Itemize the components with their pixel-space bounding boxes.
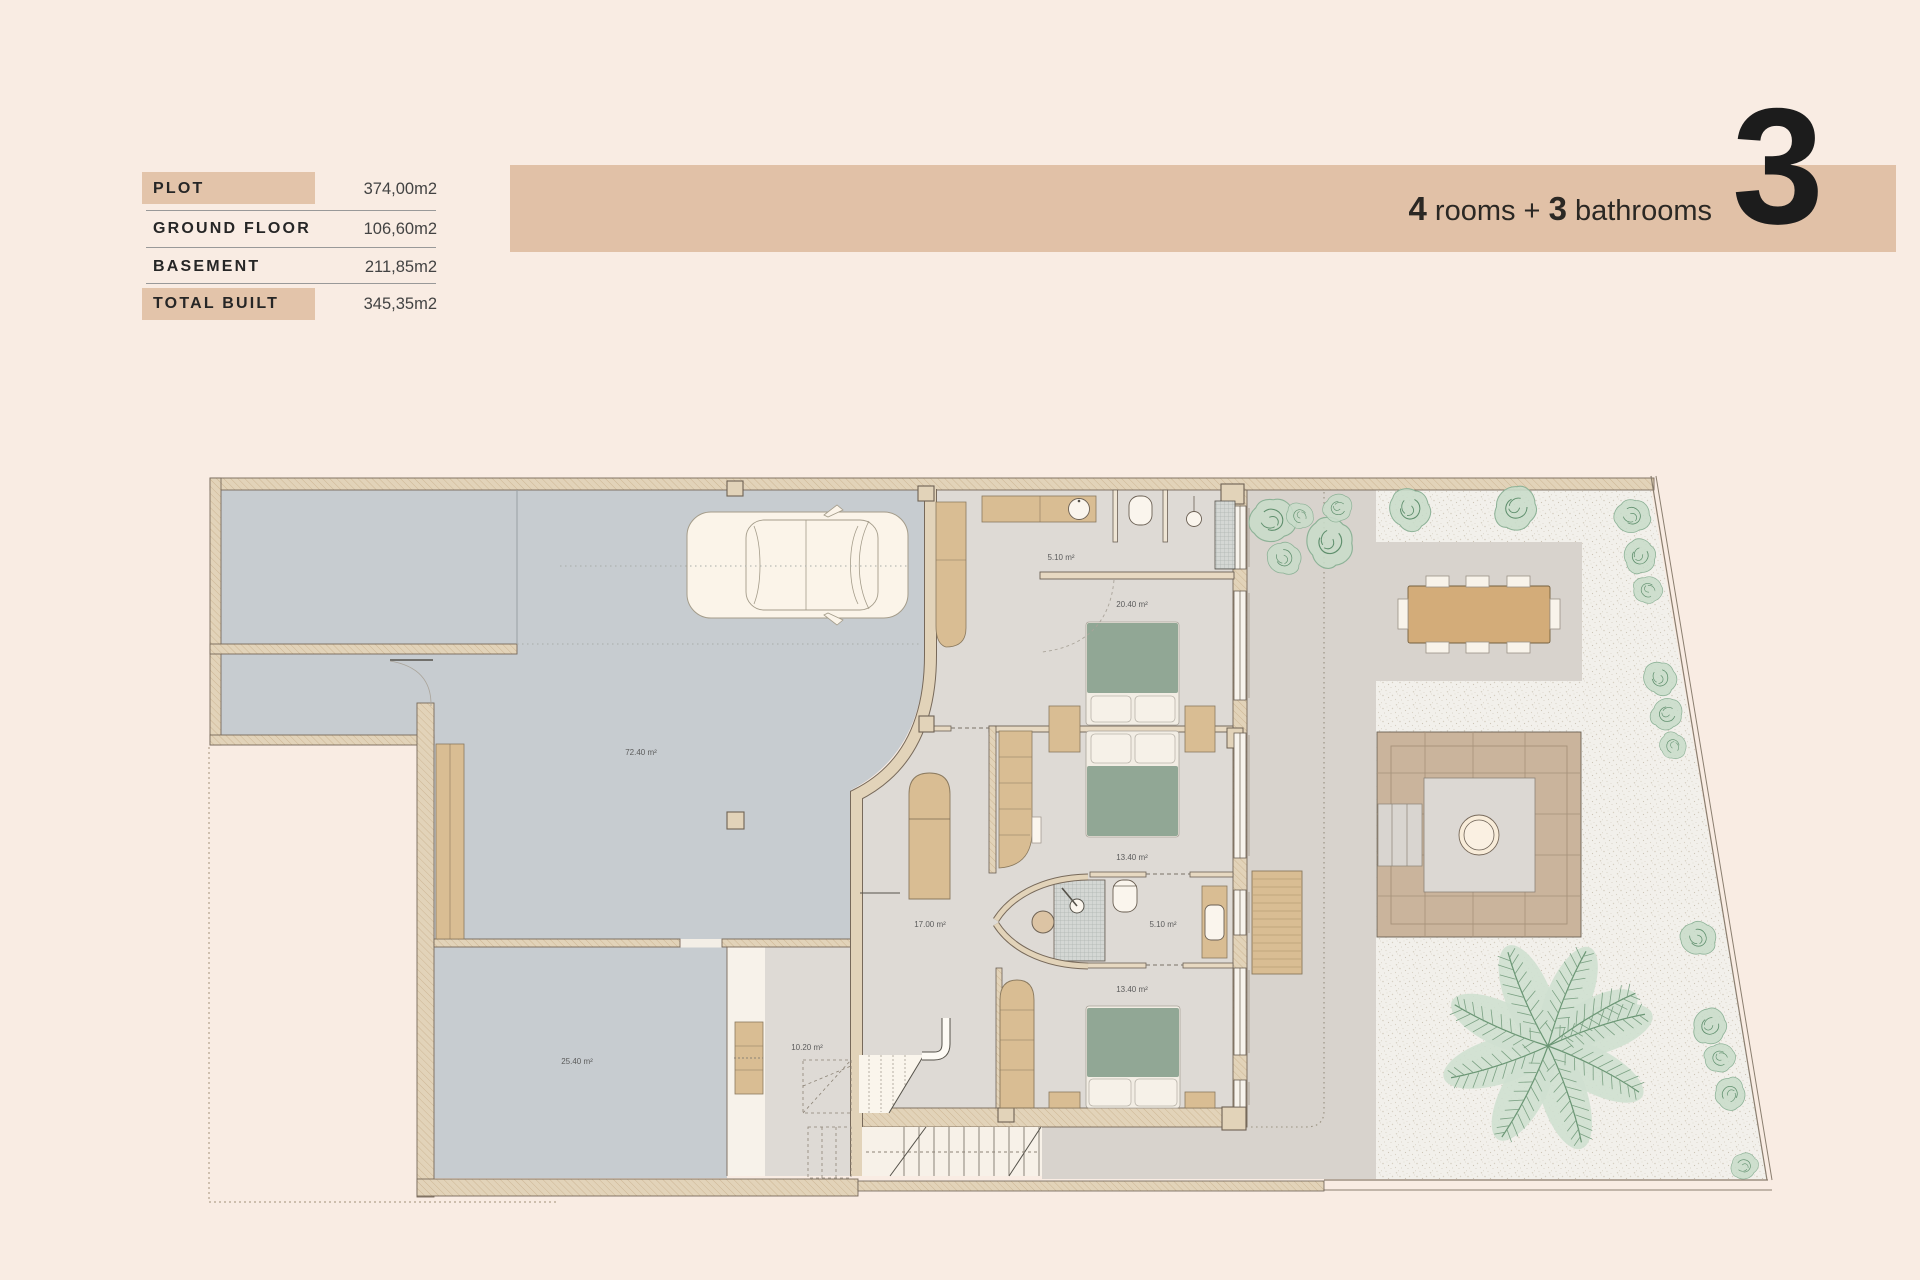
svg-text:17.00 m²: 17.00 m²	[914, 920, 946, 929]
svg-text:72.40 m²: 72.40 m²	[625, 748, 657, 757]
svg-text:10.20 m²: 10.20 m²	[791, 1043, 823, 1052]
svg-text:20.40 m²: 20.40 m²	[1116, 600, 1148, 609]
svg-text:25.40 m²: 25.40 m²	[561, 1057, 593, 1066]
svg-text:13.40 m²: 13.40 m²	[1116, 853, 1148, 862]
svg-text:5.10 m²: 5.10 m²	[1149, 920, 1176, 929]
svg-text:5.10 m²: 5.10 m²	[1047, 553, 1074, 562]
svg-text:13.40 m²: 13.40 m²	[1116, 985, 1148, 994]
